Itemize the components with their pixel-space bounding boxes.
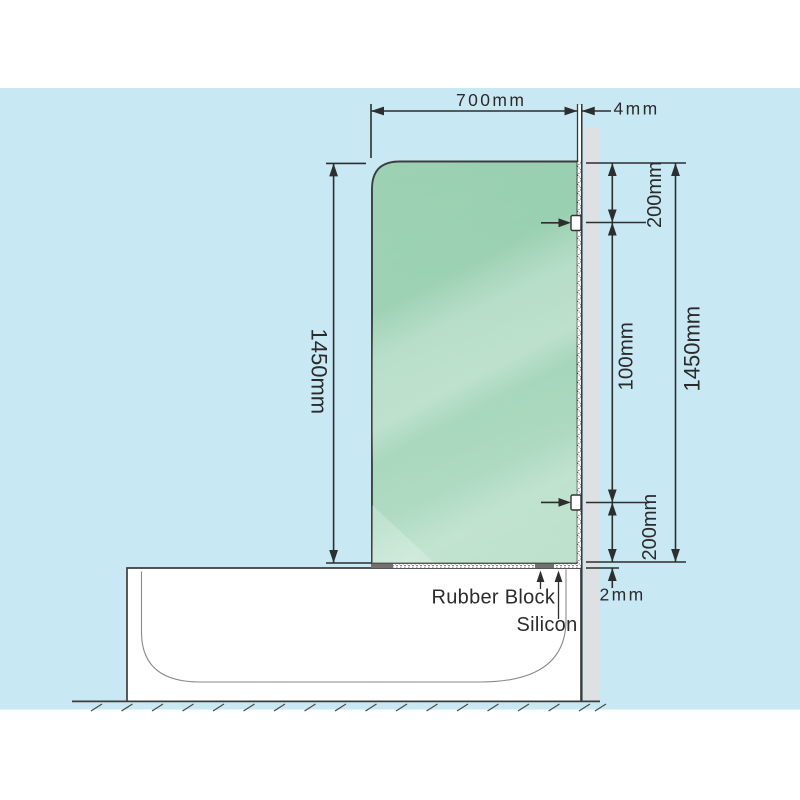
svg-text:200mm: 200mm xyxy=(644,161,666,228)
svg-text:4mm: 4mm xyxy=(614,99,660,119)
svg-text:100mm: 100mm xyxy=(615,322,638,390)
svg-text:700mm: 700mm xyxy=(456,90,526,110)
svg-text:Rubber Block: Rubber Block xyxy=(432,587,556,609)
svg-text:1450mm: 1450mm xyxy=(680,306,705,392)
svg-text:Silicon: Silicon xyxy=(517,614,578,636)
svg-text:2mm: 2mm xyxy=(600,585,646,605)
svg-text:1450mm: 1450mm xyxy=(307,329,332,415)
svg-text:200mm: 200mm xyxy=(639,494,661,561)
